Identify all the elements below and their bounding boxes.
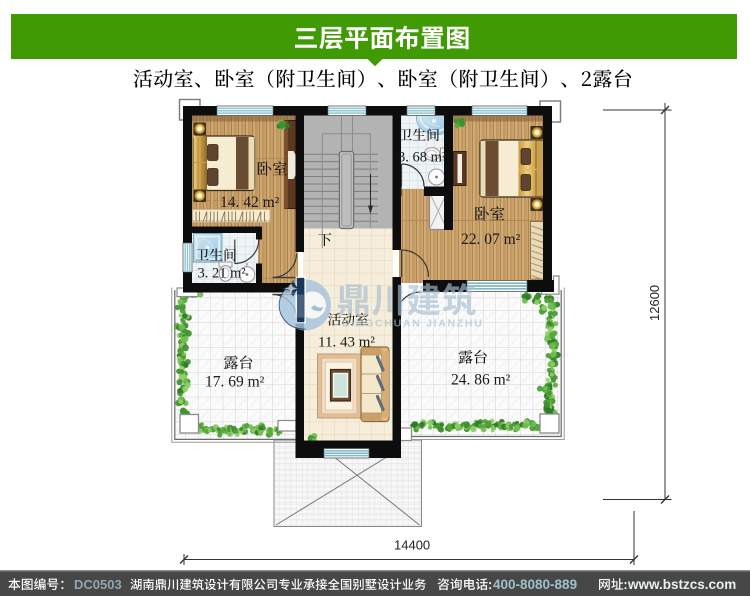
svg-text:14. 42 m²: 14. 42 m² <box>220 194 280 211</box>
svg-text:DINGCHUAN JIANZHU: DINGCHUAN JIANZHU <box>342 318 483 330</box>
svg-text:14400: 14400 <box>394 538 430 553</box>
svg-text:17. 69 m²: 17. 69 m² <box>205 374 265 391</box>
svg-text:400-8080-889: 400-8080-889 <box>493 577 577 592</box>
svg-text:24. 86 m²: 24. 86 m² <box>451 372 511 389</box>
svg-text:12600: 12600 <box>647 285 662 321</box>
svg-text:11. 43 m²: 11. 43 m² <box>318 335 375 351</box>
svg-text:DC0503: DC0503 <box>74 577 122 592</box>
svg-text:3. 21 m²: 3. 21 m² <box>198 266 247 282</box>
svg-text:3. 68 m²: 3. 68 m² <box>398 150 447 166</box>
svg-text:www.bstzcs.com: www.bstzcs.com <box>627 577 736 592</box>
svg-text:22. 07 m²: 22. 07 m² <box>461 231 521 248</box>
